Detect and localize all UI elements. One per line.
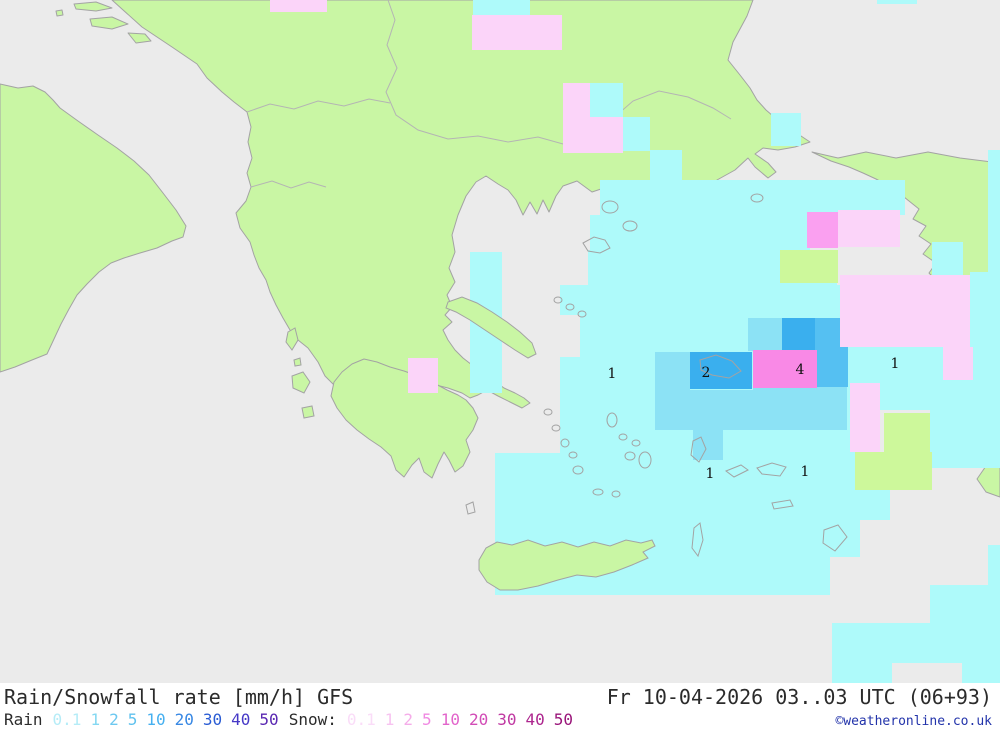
rain-scale-label: Rain [4,710,43,729]
map-value-label: 1 [891,356,900,372]
rain-scale-value: 40 [231,710,250,729]
copyright: ©weatheronline.co.uk [835,714,992,729]
rain-scale-value: 0.1 [53,710,82,729]
snow-scale-value: 20 [469,710,488,729]
map-value-label: 1 [801,464,810,480]
snow-scale-label: Snow: [289,710,337,729]
rain-scale-value: 2 [109,710,119,729]
snow-scale-value: 30 [497,710,516,729]
map-canvas: 1 2 4 1 1 1 [0,0,1000,683]
island-lefkada [294,358,301,366]
rain-scale-value: 1 [90,710,100,729]
map-title: Rain/Snowfall rate [mm/h] GFS [4,685,353,709]
snow-scale-value: 50 [554,710,573,729]
footer-legend-row: Rain 0.11251020304050 Snow: 0.1125102030… [0,709,1000,729]
land-croatia-island [56,10,63,16]
map-value-label: 4 [796,362,805,378]
snow-scale-value: 10 [441,710,460,729]
legend: Rain 0.11251020304050 Snow: 0.1125102030… [4,710,573,729]
snow-scale-value: 5 [422,710,432,729]
map-value-label: 2 [702,365,711,381]
snow-scale-value: 1 [385,710,395,729]
snow-scale-value: 40 [525,710,544,729]
map-datetime: Fr 10-04-2026 03..03 UTC (06+93) [607,685,992,709]
rain-scale-value: 50 [259,710,278,729]
map-value-label: 1 [706,466,715,482]
weather-map: 1 2 4 1 1 1 [0,0,1000,683]
footer: Rain/Snowfall rate [mm/h] GFS Fr 10-04-2… [0,683,1000,733]
snow-scale: 0.11251020304050 [347,710,573,729]
rain-scale-value: 30 [203,710,222,729]
rain-scale-value: 5 [128,710,138,729]
island-zakynthos [302,406,314,418]
snow-scale-value: 2 [403,710,413,729]
rain-scale-value: 10 [146,710,165,729]
footer-title-row: Rain/Snowfall rate [mm/h] GFS Fr 10-04-2… [0,683,1000,709]
snow-scale-value: 0.1 [347,710,376,729]
map-value-label: 1 [608,366,617,382]
rain-scale: 0.11251020304050 [53,710,279,729]
rain-scale-value: 20 [175,710,194,729]
